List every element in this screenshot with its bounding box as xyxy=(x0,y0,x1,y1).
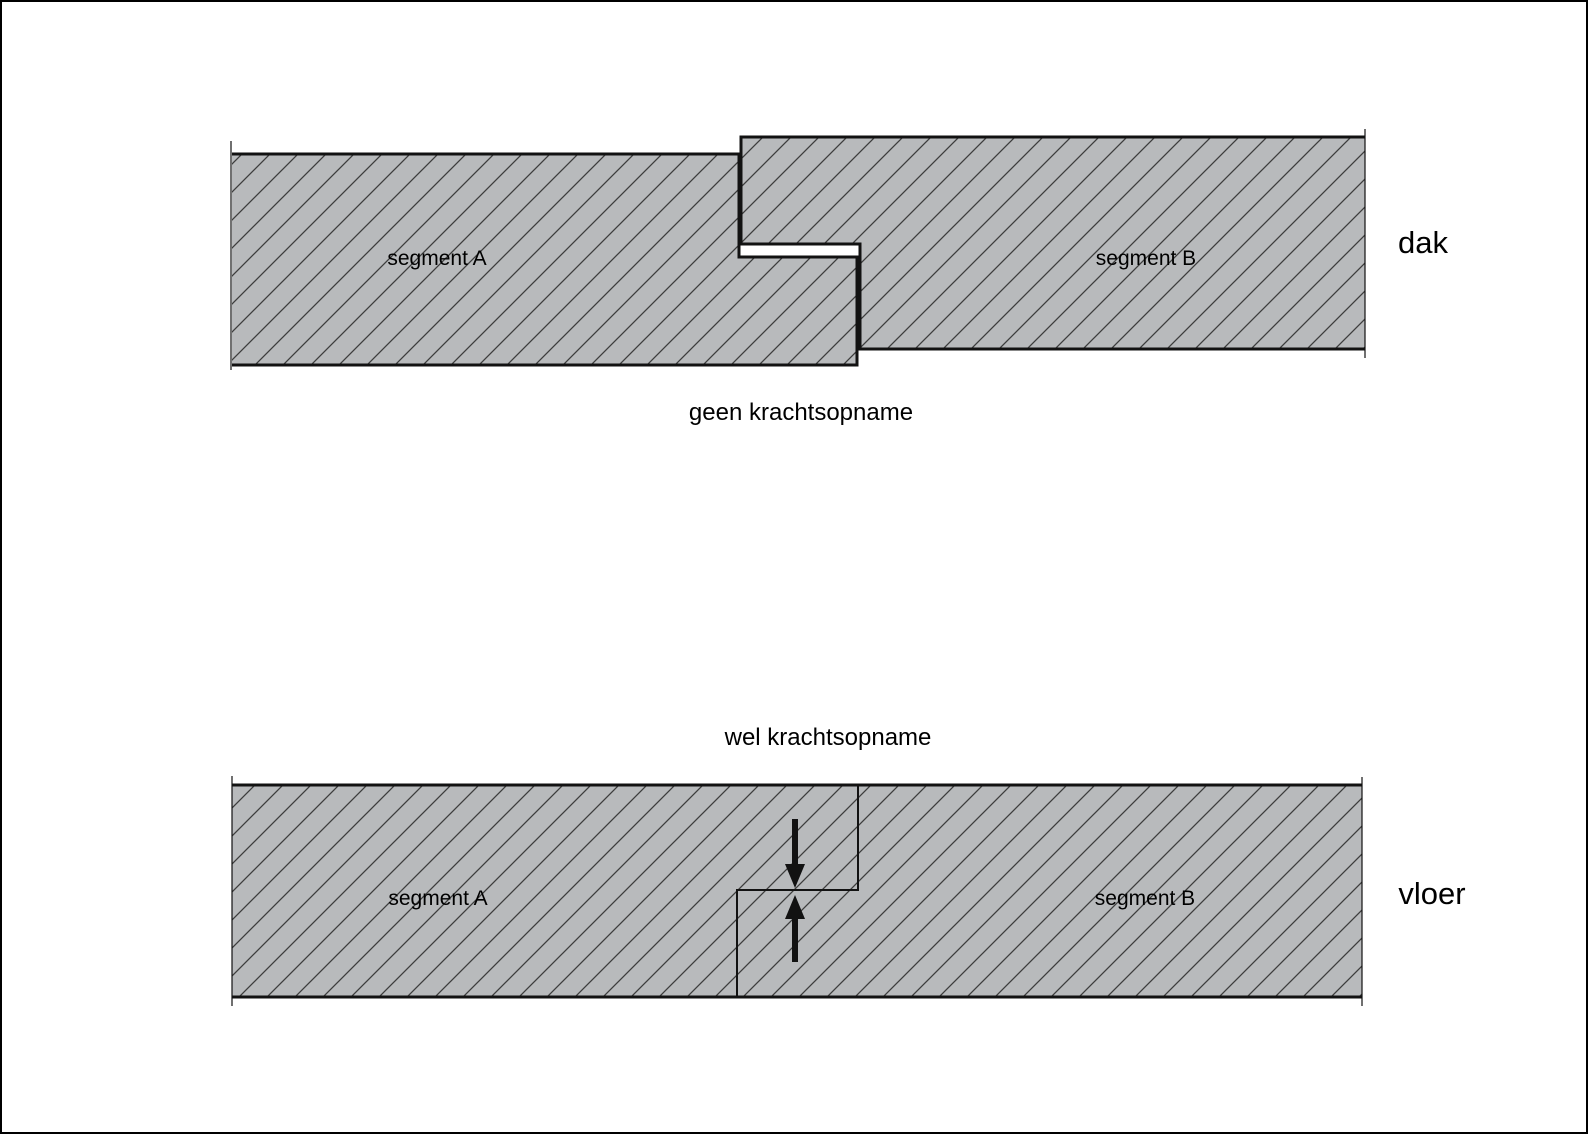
segment-joint-figure xyxy=(2,2,1588,1134)
roof-caption: geen krachtsopname xyxy=(689,399,913,427)
floor-segment-b-label: segment B xyxy=(1095,887,1195,911)
floor-caption: wel krachtsopname xyxy=(725,724,932,752)
diagram-canvas: segment A segment B dak geen krachtsopna… xyxy=(0,0,1588,1134)
floor-segment-a-label: segment A xyxy=(388,887,487,911)
roof-segment-a-label: segment A xyxy=(387,247,486,271)
floor-side-label: vloer xyxy=(1398,876,1465,912)
roof-segment-b-label: segment B xyxy=(1096,247,1196,271)
roof-side-label: dak xyxy=(1398,225,1448,261)
